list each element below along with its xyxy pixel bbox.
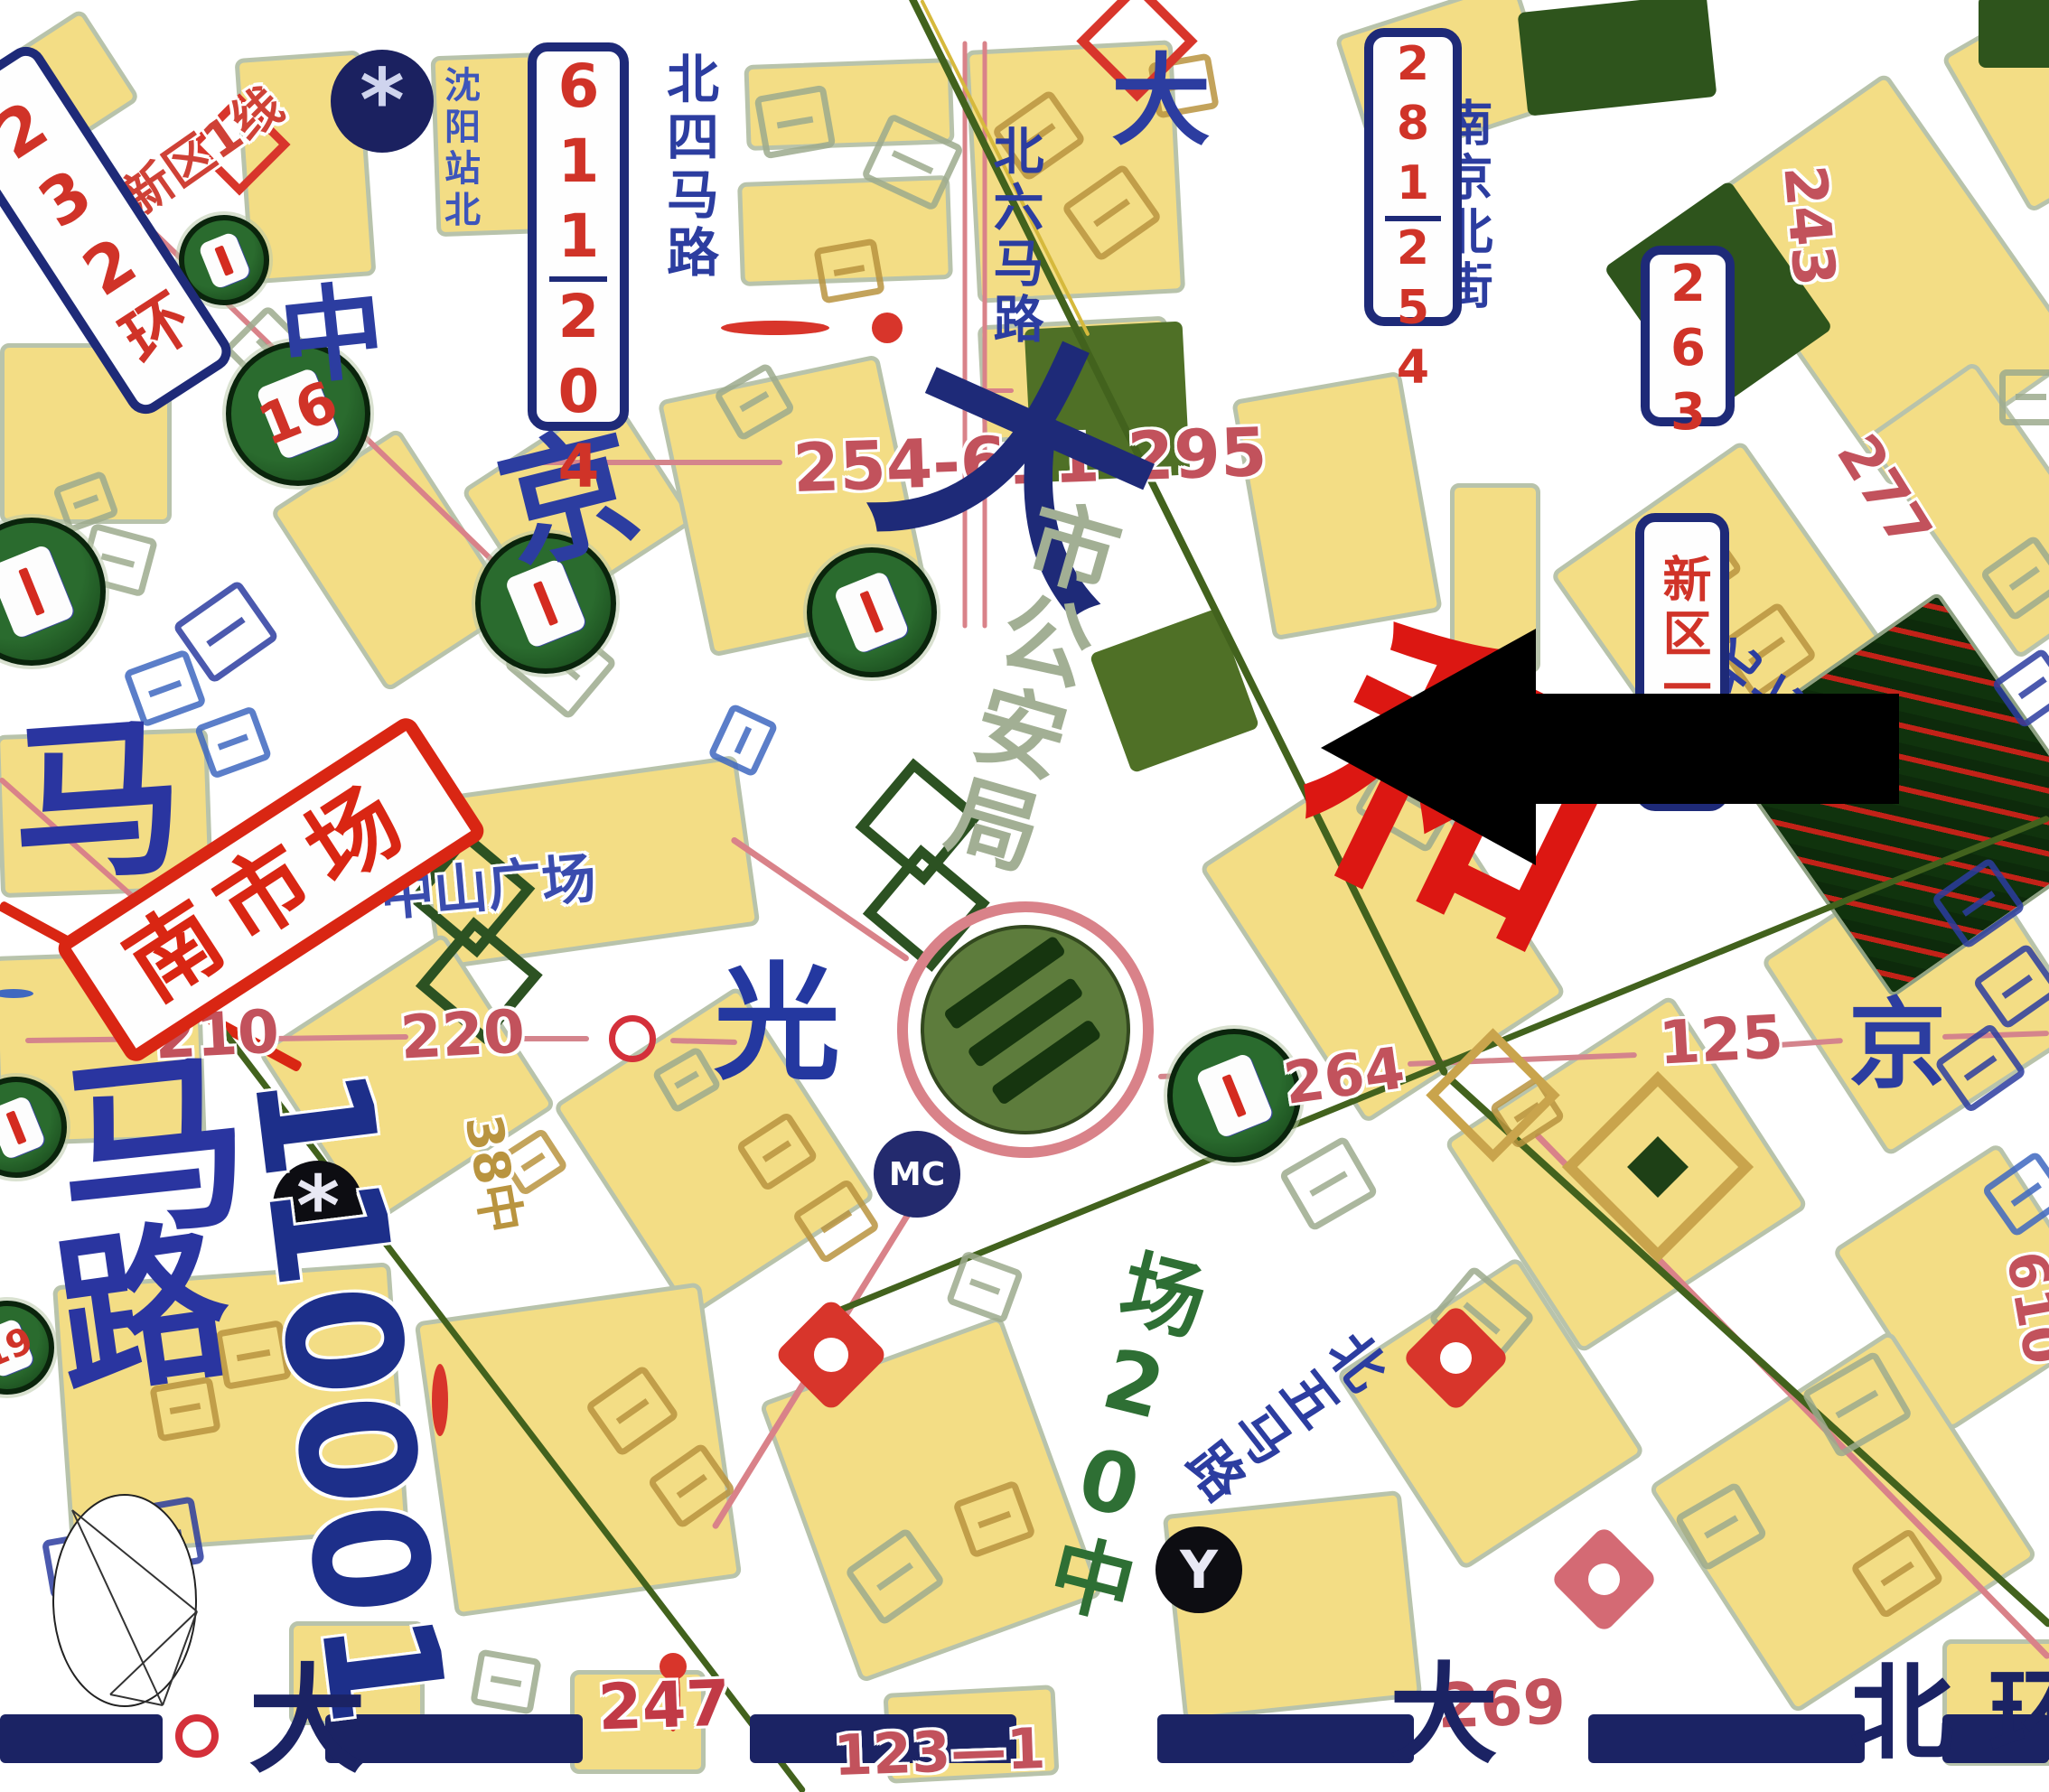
poi-circle-icon: *	[331, 50, 434, 153]
map-label: 北五马路	[1173, 1319, 1394, 1508]
route-badge: 611204	[528, 42, 629, 431]
map-label: 大	[248, 1662, 366, 1779]
map-label: 大	[1111, 51, 1211, 151]
map-glyph-texture	[813, 238, 885, 304]
map-label: 大	[1389, 1662, 1498, 1770]
map-label: 247	[597, 1671, 731, 1739]
map-label: 光	[714, 962, 840, 1088]
poi-circle-icon: Y	[1155, 1526, 1242, 1613]
map-label: 北四马路	[662, 51, 715, 283]
route-stop-marker	[609, 1015, 656, 1062]
route-badge: 263	[1641, 246, 1735, 426]
small-marker	[721, 321, 829, 335]
map-label: 125	[1657, 1007, 1784, 1073]
railway-line	[0, 1714, 163, 1763]
green-area	[1979, 0, 2049, 68]
green-area	[1090, 609, 1260, 774]
compass-rose-icon	[52, 1494, 197, 1707]
map-glyph-texture	[753, 84, 836, 159]
railway-line	[1157, 1714, 1414, 1763]
map-label: 沈阳站北	[441, 66, 477, 232]
map-label: 马	[6, 711, 190, 894]
poi-circle-icon: MC	[874, 1131, 960, 1218]
route-stop-marker	[175, 1714, 219, 1758]
station-ring-icon: 19	[0, 1301, 54, 1395]
map-label: 路	[46, 1215, 240, 1409]
map-label: 京	[1848, 997, 1946, 1095]
flower-icon	[1549, 1525, 1658, 1633]
map-label: 264	[1280, 1040, 1408, 1114]
map-label: 环	[1988, 1666, 2049, 1766]
map-label: 中	[276, 279, 389, 393]
route-badge: 281254	[1364, 28, 1462, 326]
route-badge: 新区一线	[1635, 513, 1729, 811]
map-glyph-texture	[470, 1649, 542, 1715]
small-marker	[865, 306, 909, 350]
map-glyph-texture	[1999, 369, 2049, 425]
map-label: 123—1	[833, 1721, 1047, 1784]
station-ring-icon	[1167, 1029, 1301, 1162]
railway-line	[1588, 1714, 1865, 1763]
map-glyph-texture	[1277, 1134, 1378, 1231]
green-area	[1518, 0, 1717, 116]
map-label: 北	[1849, 1663, 1953, 1767]
map-label: 243	[1774, 163, 1842, 289]
city-map[interactable]: 1619**MCY新区1线254-611-2952432772102202641…	[0, 0, 2049, 1792]
map-label: 220	[398, 1002, 526, 1068]
